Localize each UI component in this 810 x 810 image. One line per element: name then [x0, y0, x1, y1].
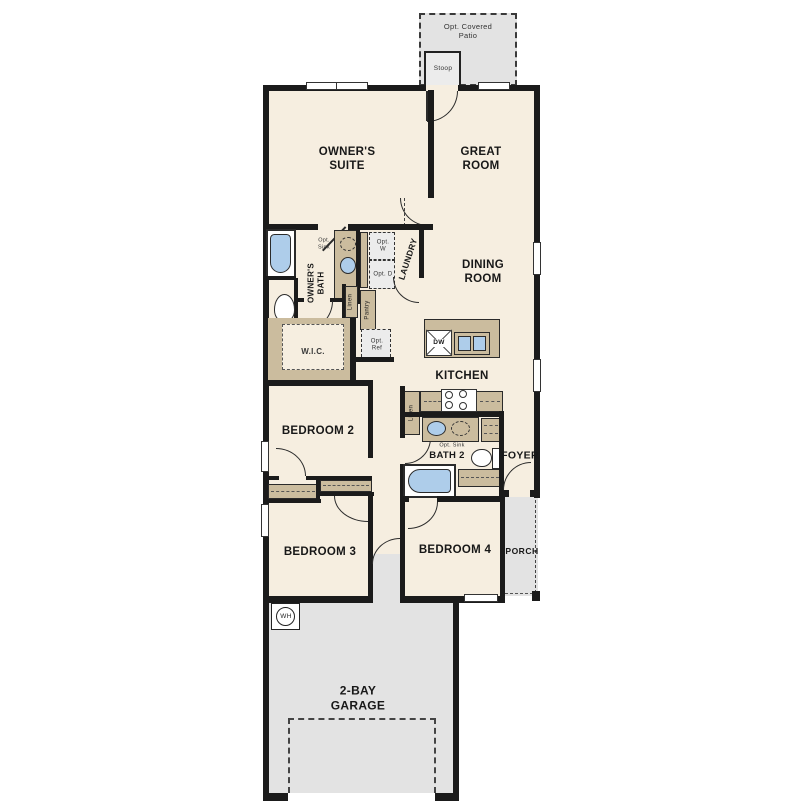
wall	[263, 596, 373, 603]
wall	[400, 502, 405, 596]
wall	[263, 793, 288, 801]
window	[306, 82, 368, 90]
floor-plan: Opt. Covered Patio Stoop Opt. Sink OWNER…	[0, 0, 810, 810]
owners-suite-label: OWNER'S SUITE	[306, 145, 388, 173]
wic-label: W.I.C.	[301, 347, 325, 357]
patio-label: Opt. Covered Patio	[436, 22, 500, 40]
stoop-label: Stoop	[434, 65, 453, 73]
opt-dryer-label: Opt. D	[373, 271, 393, 278]
bathtub2-water	[408, 469, 451, 493]
bath2-shelf	[458, 469, 503, 487]
opt-sink2-label: Opt. Sink	[439, 443, 464, 450]
stove-burner	[459, 402, 467, 410]
bath2-label: BATH 2	[429, 450, 464, 462]
counter-dash	[424, 401, 441, 402]
wall	[500, 497, 505, 598]
wall	[419, 228, 424, 278]
cabinet-dash	[484, 425, 498, 426]
stove-burner	[445, 391, 453, 399]
window	[261, 441, 269, 472]
bedroom2-label: BEDROOM 2	[282, 424, 354, 438]
bedroom3-label: BEDROOM 3	[284, 545, 356, 559]
dining-room-label: DINING ROOM	[453, 258, 513, 286]
garage-door-opening	[288, 718, 436, 793]
window-divider	[336, 82, 337, 90]
dw-label: DW	[432, 339, 445, 347]
wall	[534, 85, 540, 498]
window	[478, 82, 510, 90]
wall	[263, 499, 321, 503]
porch-label: PORCH	[505, 546, 538, 556]
opt-sink-label: Opt. Sink	[313, 237, 335, 250]
closet-shelf-dash	[323, 485, 369, 486]
counter-dash	[480, 401, 500, 402]
wall	[350, 318, 356, 381]
kitchen-sink	[458, 336, 471, 351]
optional-washer: Opt. W	[369, 232, 395, 260]
bedroom4-label: BEDROOM 4	[419, 543, 491, 557]
porch-post	[532, 591, 540, 601]
wall	[263, 605, 269, 801]
stove-burner	[459, 390, 467, 398]
closet-shelf-dash	[271, 491, 315, 492]
wall	[400, 386, 405, 438]
wall	[437, 496, 505, 502]
stove-burner	[445, 401, 453, 409]
opt-ref-label: Opt. Ref	[366, 339, 388, 354]
laundry-counter	[360, 232, 368, 288]
shelf-dash	[461, 477, 499, 478]
wall	[368, 496, 373, 598]
opening-marker	[404, 198, 406, 226]
bathtub-water	[270, 234, 291, 273]
kitchen-sink	[473, 336, 486, 351]
foyer-label: FOYER	[501, 450, 539, 463]
closet	[320, 480, 372, 492]
linen-label: Linen	[347, 294, 354, 310]
optional-dryer: Opt. D	[369, 260, 395, 289]
wall	[435, 793, 459, 801]
window	[533, 359, 541, 392]
porch-edge-dashed	[505, 593, 533, 594]
opt-washer-label: Opt. W	[373, 240, 393, 255]
great-room-label: GREAT ROOM	[451, 145, 511, 173]
wall	[530, 490, 540, 497]
wall	[356, 357, 394, 362]
optional-sink	[340, 237, 356, 251]
wall	[428, 90, 434, 198]
optional-sink	[451, 421, 470, 436]
wall	[453, 603, 459, 799]
wall	[263, 476, 279, 480]
wh-label: WH	[280, 613, 291, 621]
wall	[263, 380, 373, 386]
toilet	[471, 449, 492, 467]
sink	[427, 421, 446, 436]
window	[261, 504, 269, 537]
bath2-cabinet	[481, 418, 501, 442]
wall	[266, 276, 296, 280]
pantry-label: Pantry	[364, 300, 371, 319]
wall	[316, 476, 320, 503]
window	[533, 242, 541, 275]
window	[464, 594, 498, 602]
cabinet-dash	[484, 433, 498, 434]
kitchen-label: KITCHEN	[435, 369, 488, 383]
garage-label: 2-BAY GARAGE	[318, 683, 398, 712]
wall	[368, 386, 373, 458]
sink	[340, 257, 356, 274]
